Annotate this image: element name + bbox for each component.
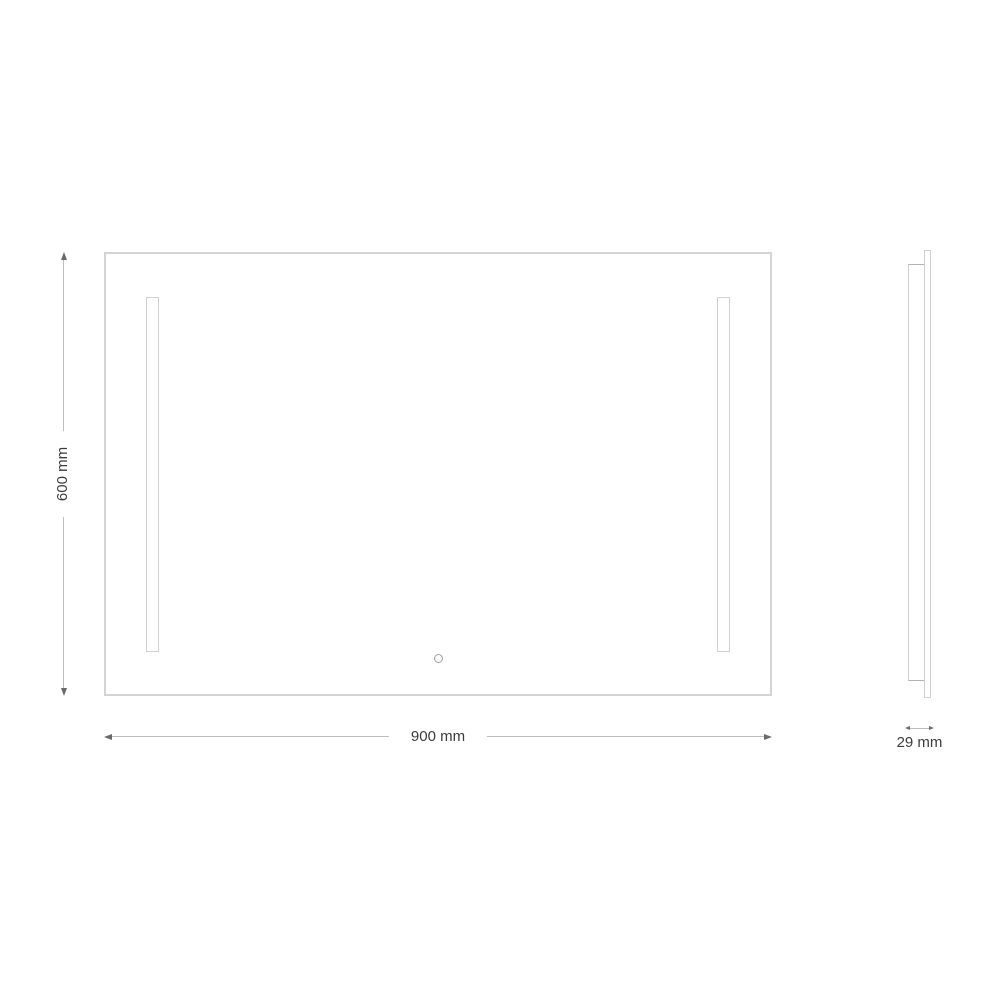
led-strip-right [717,297,730,652]
mirror-front-view [104,252,772,696]
technical-drawing-canvas: 600 mm 900 mm 29 mm [0,0,1000,1000]
depth-dimension: 29 mm [905,722,934,735]
height-dimension: 600 mm [57,252,70,696]
arrow-left-icon [104,734,112,740]
arrow-right-icon [764,734,772,740]
width-dimension: 900 mm [104,730,772,743]
arrow-right-icon [929,726,934,730]
mirror-side-view-glass [924,250,931,698]
width-dimension-label: 900 mm [389,728,487,746]
arrow-up-icon [61,252,67,260]
arrow-left-icon [905,726,910,730]
arrow-down-icon [61,688,67,696]
touch-sensor-icon [434,654,443,663]
depth-dimension-label: 29 mm [897,734,943,752]
led-strip-left [146,297,159,652]
height-dimension-label: 600 mm [54,431,72,517]
